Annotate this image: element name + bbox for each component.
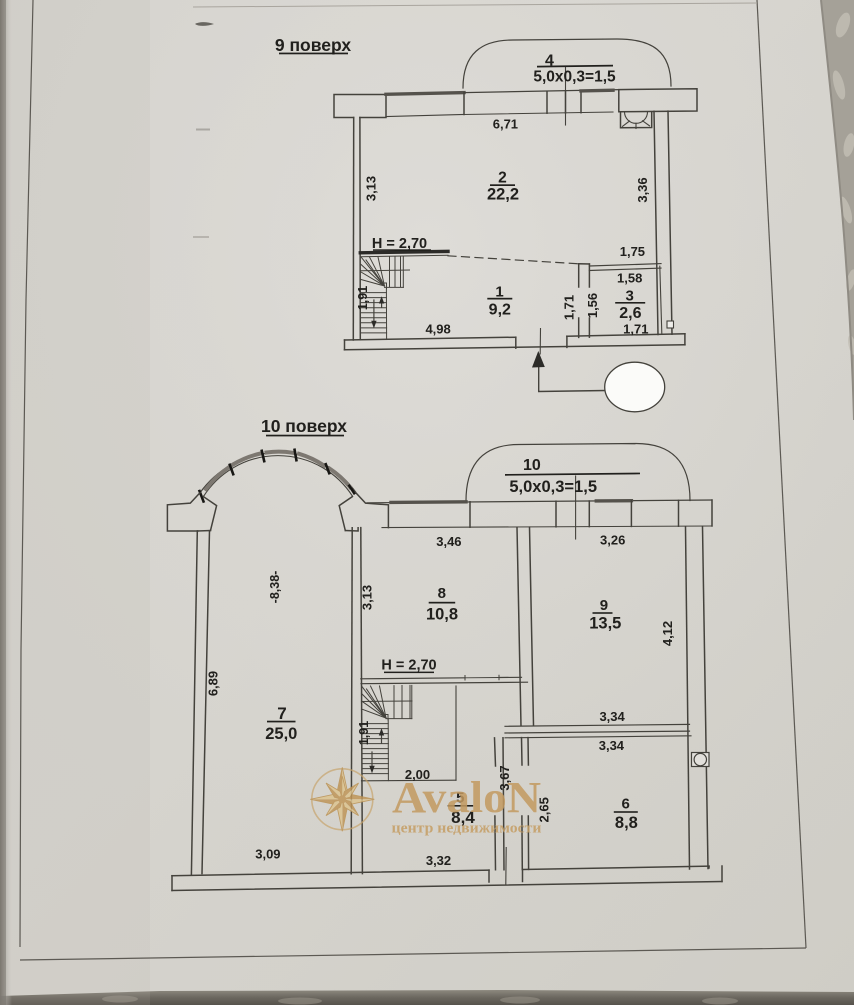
svg-text:3,13: 3,13 <box>360 585 375 610</box>
svg-text:4,12: 4,12 <box>660 621 675 646</box>
svg-text:2: 2 <box>498 170 507 187</box>
svg-text:1,56: 1,56 <box>585 293 600 318</box>
svg-text:22,2: 22,2 <box>487 186 519 204</box>
svg-text:Н = 2,70: Н = 2,70 <box>381 658 436 674</box>
svg-text:10: 10 <box>523 457 541 474</box>
svg-text:5,0x0,3=1,5: 5,0x0,3=1,5 <box>509 478 597 496</box>
svg-text:6,89: 6,89 <box>206 671 221 696</box>
svg-text:10 поверх: 10 поверх <box>261 416 347 436</box>
svg-text:8: 8 <box>438 585 446 602</box>
svg-text:8,8: 8,8 <box>615 814 638 832</box>
svg-text:3,34: 3,34 <box>599 709 625 724</box>
svg-text:9,2: 9,2 <box>489 302 511 319</box>
svg-text:13,5: 13,5 <box>589 615 621 633</box>
svg-text:5,0x0,3=1,5: 5,0x0,3=1,5 <box>533 69 616 86</box>
svg-text:3,36: 3,36 <box>635 177 650 202</box>
svg-text:3: 3 <box>626 288 634 305</box>
svg-text:7: 7 <box>277 704 286 723</box>
svg-text:6: 6 <box>622 796 630 813</box>
svg-text:25,0: 25,0 <box>265 725 297 743</box>
svg-text:AvaloN: AvaloN <box>392 773 541 822</box>
svg-text:6,71: 6,71 <box>493 117 518 132</box>
svg-text:1,71: 1,71 <box>561 295 576 320</box>
svg-text:3,32: 3,32 <box>426 853 451 868</box>
svg-text:4,98: 4,98 <box>425 322 450 337</box>
svg-text:9: 9 <box>600 597 608 614</box>
svg-text:1,75: 1,75 <box>620 244 645 259</box>
svg-text:2,6: 2,6 <box>619 305 641 322</box>
svg-text:1,71: 1,71 <box>623 321 648 336</box>
svg-text:1,91: 1,91 <box>356 286 370 310</box>
svg-text:3,26: 3,26 <box>600 533 625 548</box>
svg-text:1,91: 1,91 <box>357 721 371 745</box>
svg-text:3,46: 3,46 <box>436 534 461 549</box>
svg-text:3,09: 3,09 <box>255 847 280 862</box>
svg-text:3,34: 3,34 <box>599 738 625 753</box>
svg-text:10,8: 10,8 <box>426 606 458 624</box>
svg-text:центр недвижимости: центр недвижимости <box>392 821 542 837</box>
svg-text:9 поверх: 9 поверх <box>275 35 352 55</box>
svg-text:1,58: 1,58 <box>617 271 642 286</box>
svg-text:3,13: 3,13 <box>363 176 378 201</box>
svg-text:-8,38-: -8,38- <box>268 571 282 604</box>
